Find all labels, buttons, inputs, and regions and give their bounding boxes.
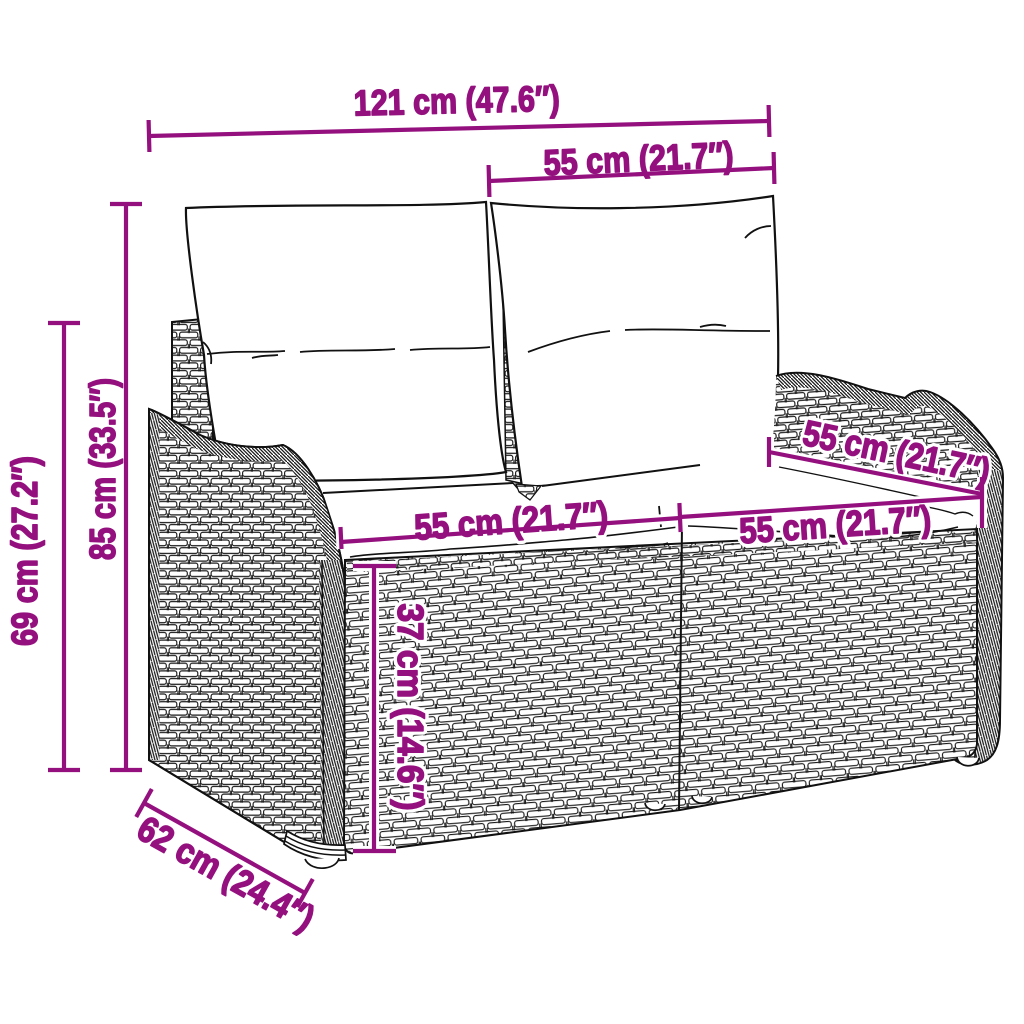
- svg-text:121 cm (47.6″): 121 cm (47.6″): [353, 77, 560, 123]
- svg-text:69 cm (27.2″): 69 cm (27.2″): [4, 456, 45, 646]
- svg-text:85 cm (33.5″): 85 cm (33.5″): [82, 378, 123, 560]
- svg-text:55 cm (21.7″): 55 cm (21.7″): [543, 134, 735, 184]
- svg-text:37 cm (14.6″): 37 cm (14.6″): [390, 604, 431, 811]
